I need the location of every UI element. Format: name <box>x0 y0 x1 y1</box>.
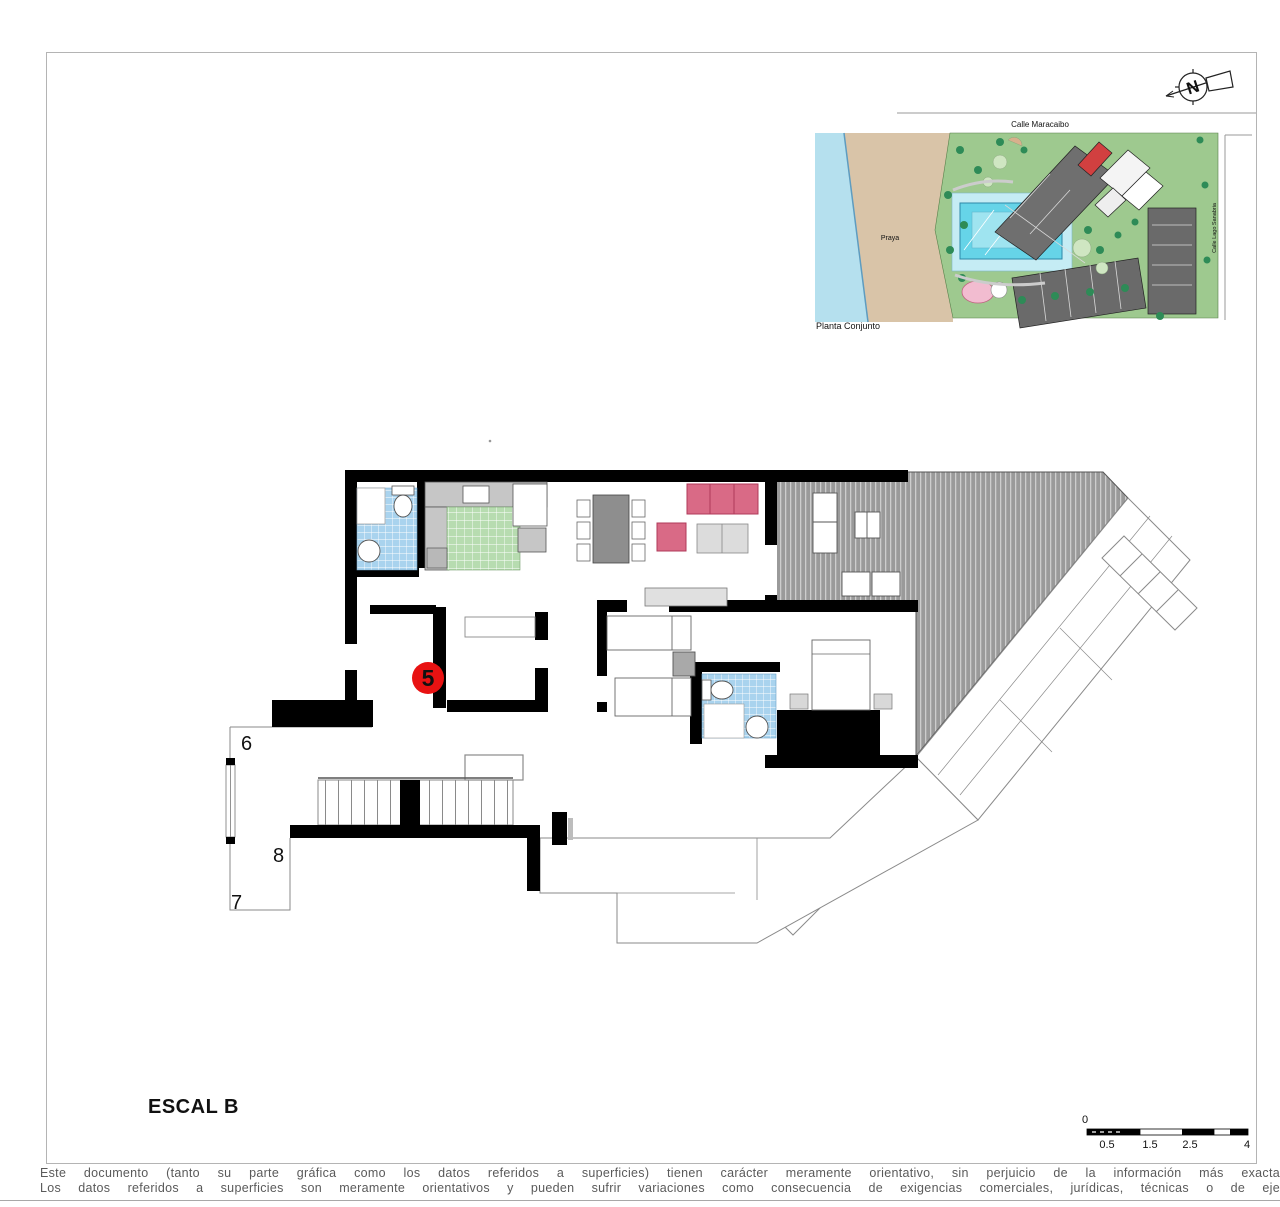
lower-wing <box>540 757 978 943</box>
fridge <box>513 484 547 526</box>
stairs <box>318 755 523 825</box>
bedroom-2 <box>607 616 695 716</box>
landing-number-8: 8 <box>273 845 284 867</box>
toilet-icon-2 <box>711 681 733 699</box>
floor-plan: 5 6 8 7 <box>226 440 1197 943</box>
dining-area <box>577 495 645 563</box>
kitchen <box>425 482 547 570</box>
oven <box>427 548 447 568</box>
bed-twin-2 <box>615 678 691 716</box>
scale-tick-4: 4 <box>1244 1139 1250 1151</box>
wardrobe <box>673 652 695 676</box>
street-top-label: Calle Maracaibo <box>1011 120 1069 129</box>
scale-tick-05: 0.5 <box>1099 1139 1114 1151</box>
armchair <box>657 523 686 551</box>
unit-marker: 5 <box>412 662 444 694</box>
kitchen-floor <box>447 507 520 570</box>
scale-tick-15: 1.5 <box>1142 1139 1157 1151</box>
sun-lounger-3 <box>872 572 900 596</box>
sink-icon <box>358 540 380 562</box>
scale-tick-25: 2.5 <box>1182 1139 1197 1151</box>
bedroom-3 <box>790 640 892 710</box>
landing-number-7: 7 <box>231 892 242 914</box>
disclaimer-line-2: Los datos referidos a superficies son me… <box>40 1181 1280 1196</box>
toilet-icon <box>394 495 412 517</box>
stray-dot <box>489 440 492 443</box>
beach-label: Praya <box>881 235 899 242</box>
coffee-table <box>697 524 748 553</box>
landing-number-6: 6 <box>241 733 252 755</box>
kitchen-sink <box>463 486 489 503</box>
site-plan: Calle Maracaibo Praya <box>815 113 1256 331</box>
unit-number: 5 <box>422 665 435 691</box>
bed-double <box>812 640 870 710</box>
street-right-label: Calle Lago Sanabria <box>1212 202 1218 253</box>
shower-tray <box>357 488 385 524</box>
scale-bar: 0 0.5 1.5 2.5 4 <box>1082 1114 1250 1151</box>
plan-sheet: N Calle Maracaibo Praya <box>0 0 1280 1207</box>
bathroom-2 <box>702 674 776 738</box>
sun-lounger-2 <box>842 572 870 596</box>
bottom-rule <box>0 1200 1280 1201</box>
bed-twin-1 <box>607 616 691 650</box>
north-arrow: N <box>1166 69 1233 105</box>
terrace-table <box>855 512 880 538</box>
living-area <box>645 484 758 606</box>
shower-tray-2 <box>704 704 744 738</box>
disclaimer-line-1: Este documento (tanto su parte gráfica c… <box>40 1166 1280 1181</box>
north-letter: N <box>1184 77 1202 99</box>
sofa <box>687 484 758 514</box>
closet <box>465 617 535 637</box>
site-plan-caption: Planta Conjunto <box>816 321 880 331</box>
toilet-tank-2 <box>702 680 711 700</box>
sun-lounger-1 <box>813 493 837 553</box>
page-title: ESCAL B <box>148 1096 239 1118</box>
drawing-canvas: N Calle Maracaibo Praya <box>0 0 1280 1207</box>
scale-zero: 0 <box>1082 1114 1088 1126</box>
sink-icon-2 <box>746 716 768 738</box>
sideboard <box>645 588 727 606</box>
toilet-tank <box>392 486 414 495</box>
nightstand-left <box>790 694 808 709</box>
nightstand-right <box>874 694 892 709</box>
bathroom-1 <box>357 486 417 570</box>
dining-table <box>593 495 629 563</box>
kitchen-appliance <box>518 528 546 552</box>
